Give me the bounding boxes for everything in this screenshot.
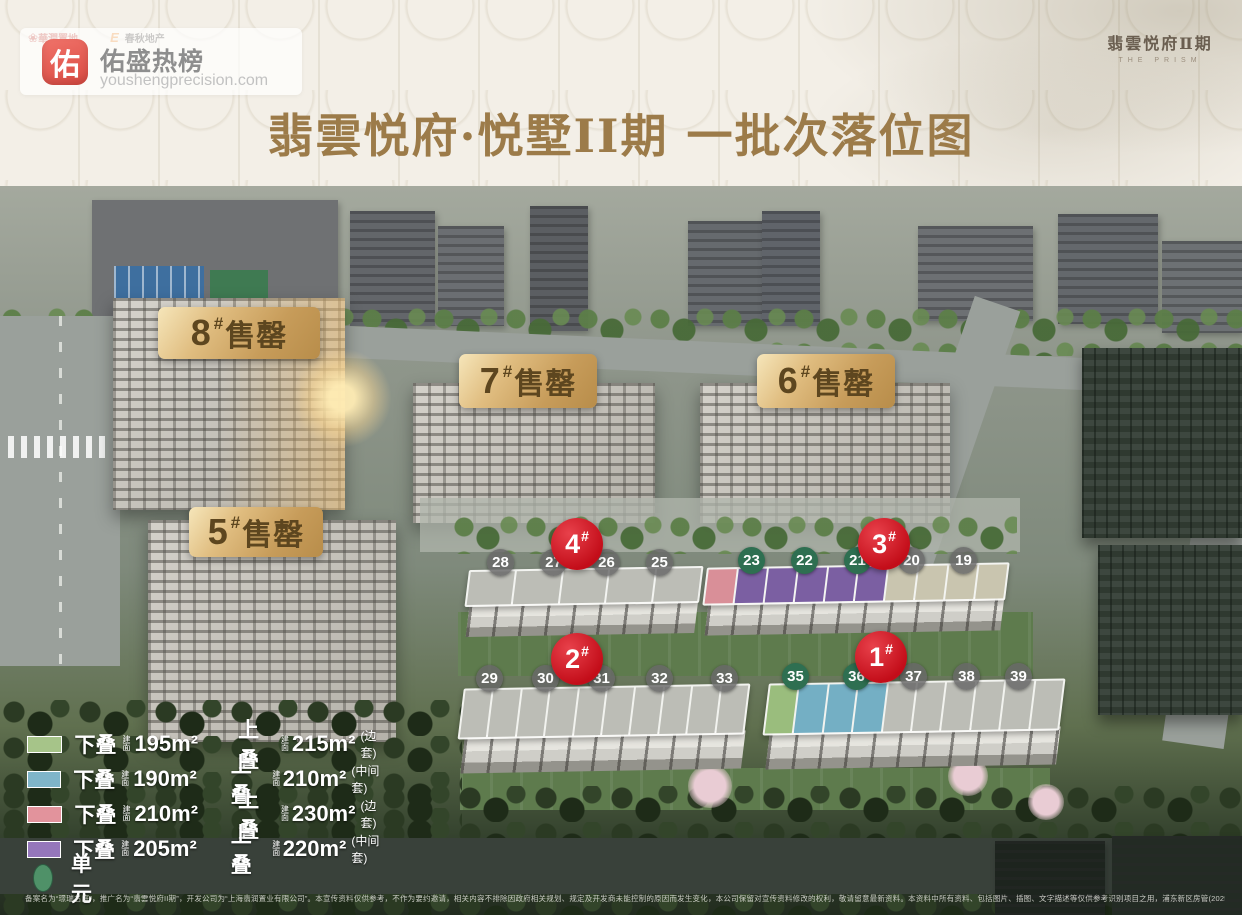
- roof-slot: [912, 683, 945, 731]
- unit-25-marker[interactable]: 25: [646, 549, 673, 576]
- project-brand-tagline: THE PRISM: [1100, 57, 1220, 64]
- legend-lower-area: 205m²: [133, 836, 197, 862]
- blossom-tree: [1028, 784, 1064, 820]
- building-5-soldout-label[interactable]: 5#售罄: [189, 507, 323, 557]
- building-number: 5: [208, 511, 228, 553]
- legend-upper-area: 220m²: [283, 836, 347, 862]
- project-brand: 翡雲悦府Ⅱ期 THE PRISM: [1100, 30, 1220, 64]
- building-3-badge[interactable]: 3#: [858, 518, 910, 570]
- roof-slot: [467, 571, 516, 605]
- roof-slot: [971, 681, 1004, 729]
- glass-tower-right-upper: [1082, 348, 1242, 538]
- building-number: 8: [191, 312, 211, 354]
- project-brand-name: 翡雲悦府Ⅱ期: [1100, 30, 1220, 54]
- building-4-badge[interactable]: 4#: [551, 518, 603, 570]
- watermark-url: youshengprecision.com: [100, 72, 268, 90]
- glass-tower-right-lower: [1098, 545, 1242, 715]
- roof-slot: [688, 686, 720, 733]
- unit-22-marker[interactable]: 22: [791, 547, 818, 574]
- hash-mark: #: [885, 641, 893, 657]
- watermark-app-icon: 佑: [42, 39, 88, 85]
- disclaimer-text: 备案名为“璟瑞名庭”，推广名为“翡雲悦府II期”，开发公司为“上海翡润置业有限公…: [25, 893, 1225, 904]
- unit-39-marker[interactable]: 39: [1005, 663, 1032, 690]
- roof-slot: [488, 690, 520, 737]
- blossom-tree: [688, 764, 732, 808]
- unit-32-marker[interactable]: 32: [646, 665, 673, 692]
- roof-slot: [517, 689, 549, 736]
- roof-slot: [602, 688, 634, 735]
- page-title: 翡雲悦府·悦墅II期 一批次落位图: [0, 100, 1242, 166]
- hash-mark: #: [888, 528, 896, 544]
- roof-block-south-left: [458, 684, 751, 740]
- roof-slot: [824, 684, 857, 732]
- tree-band-central: [452, 516, 1017, 554]
- roof-slot: [883, 683, 916, 731]
- unit-23-marker[interactable]: 23: [738, 547, 765, 574]
- unit-circle-icon: [33, 864, 53, 892]
- building-2-badge[interactable]: 2#: [551, 633, 603, 685]
- aerial-site-photo: 8#售罄 7#售罄 6#售罄 5#售罄 4# 3# 2# 1# 28 27 26…: [0, 186, 1242, 915]
- roof-slot: [765, 568, 797, 602]
- building-7-soldout-label[interactable]: 7#售罄: [459, 354, 597, 408]
- hash-mark: #: [581, 528, 589, 544]
- crosswalk: [8, 436, 108, 458]
- area-prefix: 建面: [121, 841, 131, 857]
- roof-slot: [659, 687, 691, 734]
- unit-33-marker[interactable]: 33: [711, 665, 738, 692]
- building-number: 7: [480, 360, 500, 402]
- hash-mark: #: [231, 513, 240, 533]
- roof-slot: [631, 687, 663, 734]
- building-number: 6: [778, 360, 798, 402]
- hash-mark: #: [503, 362, 512, 382]
- roof-slot: [794, 685, 827, 733]
- soldout-text: 售罄: [225, 311, 287, 355]
- roof-slot: [765, 685, 798, 733]
- unit-19-marker[interactable]: 19: [950, 547, 977, 574]
- building-8-soldout-label[interactable]: 8#售罄: [158, 307, 320, 359]
- building-1-badge[interactable]: 1#: [855, 631, 907, 683]
- roof-slot: [574, 688, 606, 735]
- unit-29-marker[interactable]: 29: [476, 665, 503, 692]
- area-prefix: 建面: [272, 841, 280, 857]
- soldout-text: 售罄: [812, 359, 874, 403]
- roof-slot: [853, 684, 886, 732]
- hash-mark: #: [214, 314, 223, 334]
- roof-slot: [545, 689, 577, 736]
- unit-28-marker[interactable]: 28: [487, 549, 514, 576]
- badge-number: 2: [565, 644, 580, 675]
- roof-slot: [1030, 680, 1063, 728]
- badge-number: 3: [872, 529, 887, 560]
- roof-slot: [975, 564, 1007, 598]
- roof-slot: [705, 569, 737, 603]
- unit-38-marker[interactable]: 38: [953, 663, 980, 690]
- soldout-text: 售罄: [242, 510, 304, 554]
- watermark-card: 佑 佑盛热榜 youshengprecision.com: [20, 28, 302, 95]
- roof-slot: [716, 686, 748, 733]
- soldout-text: 售罄: [514, 359, 576, 403]
- hash-mark: #: [581, 643, 589, 659]
- roof-slot: [460, 690, 492, 737]
- legend-note: (中间套): [351, 832, 388, 866]
- legend-upper-label: 上叠: [231, 819, 267, 879]
- road-left: [0, 316, 120, 666]
- badge-number: 1: [869, 642, 884, 673]
- page-header: ❀華潤置地 E 春秋地产 佑 佑盛热榜 youshengprecision.co…: [0, 0, 1242, 186]
- badge-number: 4: [565, 529, 580, 560]
- hash-mark: #: [801, 362, 810, 382]
- building-6-soldout-label[interactable]: 6#售罄: [757, 354, 895, 408]
- unit-35-marker[interactable]: 35: [782, 663, 809, 690]
- sun-glare: [292, 348, 392, 448]
